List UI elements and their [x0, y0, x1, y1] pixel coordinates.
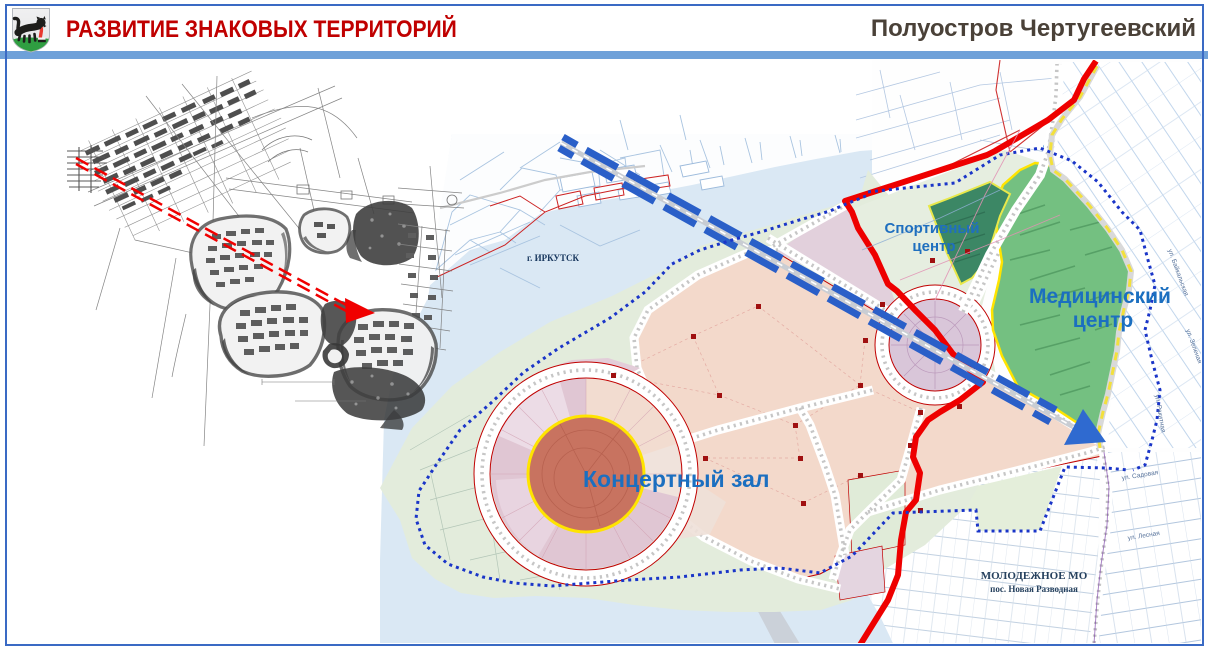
svg-text:МОЛОДЕЖНОЕ МО: МОЛОДЕЖНОЕ МО: [981, 570, 1088, 582]
svg-text:г. ИРКУТСК: г. ИРКУТСК: [527, 253, 580, 263]
svg-text:центр: центр: [912, 238, 955, 255]
svg-text:Спортивный: Спортивный: [885, 220, 980, 237]
svg-text:центр: центр: [1073, 309, 1133, 332]
svg-text:Концертный зал: Концертный зал: [583, 466, 770, 492]
svg-text:пос. Новая Разводная: пос. Новая Разводная: [990, 584, 1078, 594]
svg-text:Медицинский: Медицинский: [1029, 285, 1171, 308]
